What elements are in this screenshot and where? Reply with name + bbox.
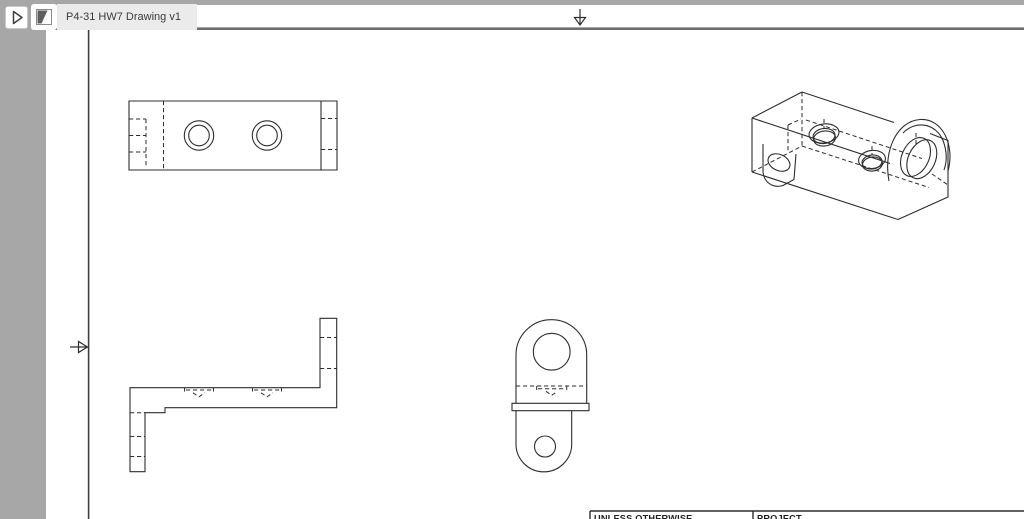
- title-block: UNLESS OTHERWISE PROJECT: [590, 511, 1024, 519]
- top-view[interactable]: [129, 101, 337, 170]
- left-chrome-strip: [0, 0, 46, 519]
- front-view[interactable]: [130, 318, 337, 471]
- play-right-icon: [6, 7, 27, 28]
- title-block-project-label: PROJECT: [757, 514, 802, 519]
- side-view[interactable]: [512, 320, 589, 472]
- tab-drawing[interactable]: P4-31 HW7 Drawing v1: [31, 4, 197, 30]
- drawing-sheet-icon: [31, 4, 57, 30]
- title-block-left-label: UNLESS OTHERWISE: [594, 514, 693, 519]
- tab-label: P4-31 HW7 Drawing v1: [57, 4, 197, 30]
- drawing-canvas: UNLESS OTHERWISE PROJECT: [0, 0, 1024, 519]
- sheet-center-mark-top-icon: [575, 9, 586, 25]
- isometric-view[interactable]: [752, 92, 950, 220]
- app-window: UNLESS OTHERWISE PROJECT P4-31 HW7 Drawi…: [0, 0, 1024, 519]
- expand-panel-button[interactable]: [5, 6, 28, 29]
- sheet-center-mark-left-icon: [70, 342, 88, 353]
